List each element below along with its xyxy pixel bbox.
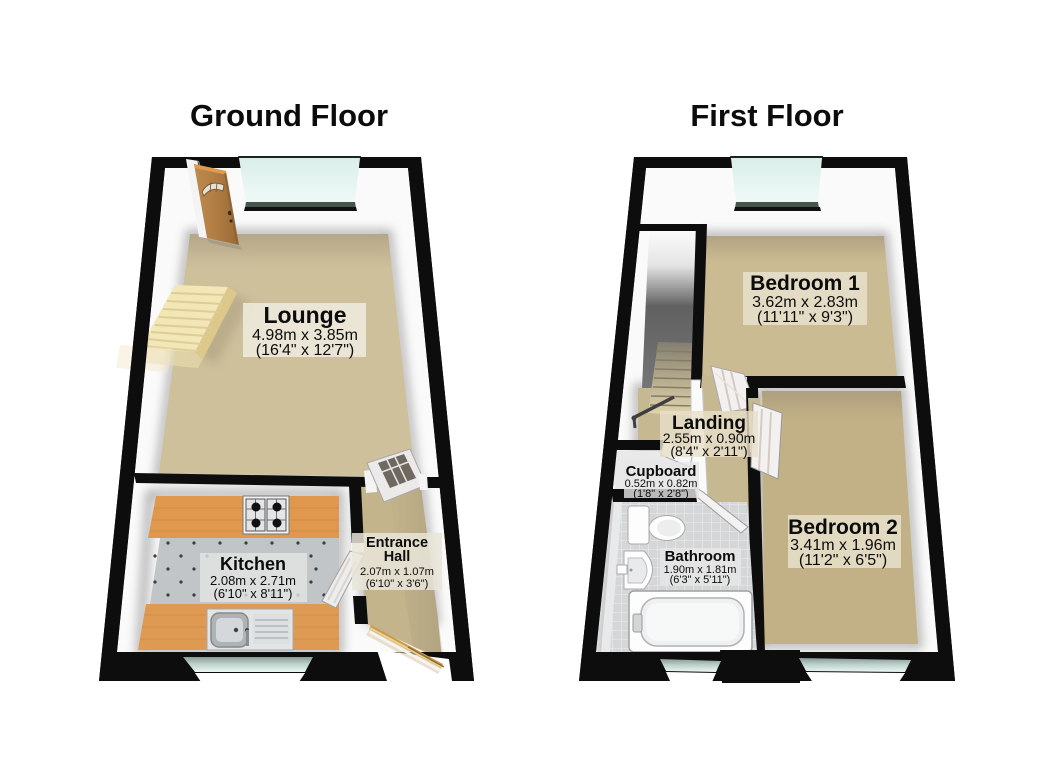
svg-text:(16'4" x 12'7"): (16'4" x 12'7") (256, 342, 354, 359)
svg-text:Ground Floor: Ground Floor (190, 98, 388, 133)
svg-text:(8'4" x 2'11"): (8'4" x 2'11") (670, 443, 747, 459)
svg-text:(6'3" x 5'11"): (6'3" x 5'11") (670, 574, 731, 586)
svg-text:(11'2" x 6'5"): (11'2" x 6'5") (799, 552, 887, 569)
svg-text:2.07m x 1.07m: 2.07m x 1.07m (360, 566, 434, 578)
svg-text:Kitchen: Kitchen (220, 554, 286, 574)
svg-text:Hall: Hall (384, 549, 411, 565)
svg-text:Bathroom: Bathroom (665, 548, 736, 565)
svg-text:Lounge: Lounge (263, 302, 346, 328)
svg-text:First Floor: First Floor (690, 98, 843, 133)
svg-text:(6'10" x 8'11"): (6'10" x 8'11") (214, 586, 293, 601)
svg-text:Bedroom 2: Bedroom 2 (788, 516, 898, 539)
svg-text:(11'11" x 9'3"): (11'11" x 9'3") (757, 309, 853, 326)
svg-text:(1'8" x 2'8"): (1'8" x 2'8") (633, 488, 688, 500)
svg-text:(6'10" x 3'6"): (6'10" x 3'6") (366, 578, 429, 590)
svg-text:Bedroom 1: Bedroom 1 (750, 272, 860, 295)
